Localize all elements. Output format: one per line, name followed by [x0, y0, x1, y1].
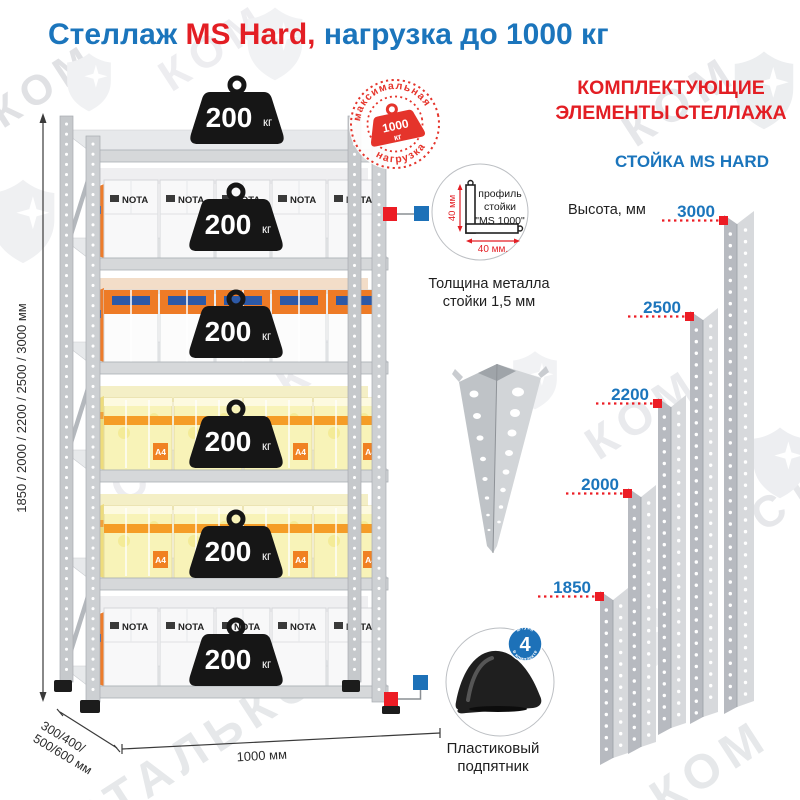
weight-value: 200 — [205, 536, 252, 567]
weight-value: 200 — [205, 316, 252, 347]
blue-marker — [413, 675, 428, 690]
profile-caption-3: "MS 1000" — [475, 215, 525, 227]
weight-value: 200 — [205, 644, 252, 675]
profile-detail: 40 мм 40 мм. профиль стойки "MS 1000" — [432, 164, 528, 260]
post-section-subheading: СТОЙКА MS HARD — [602, 152, 782, 172]
red-marker — [719, 216, 728, 225]
profile-dim-horizontal: 40 мм. — [478, 244, 508, 255]
height-caption: Высота, мм — [568, 202, 646, 218]
red-marker — [595, 592, 604, 601]
page-title: Стеллаж MS Hard, нагрузка до 1000 кг — [48, 18, 609, 52]
weight-value: 200 — [205, 209, 252, 240]
title-part-blue: Стеллаж — [48, 18, 185, 51]
components-heading-line2: ЭЛЕМЕНТЫ СТЕЛЛАЖА — [545, 101, 797, 126]
width-label: 1000 мм — [236, 747, 287, 765]
plastic-foot-detail: 4 штуки в комплекте — [446, 626, 554, 736]
a4-label: A4 — [155, 555, 166, 565]
box-brand: NOTA — [122, 195, 148, 206]
a4-label: A4 — [295, 447, 306, 457]
qty-value: 4 — [519, 634, 531, 656]
red-marker — [685, 312, 694, 321]
post-label: 2000 — [581, 475, 619, 494]
weight-badge: 200 кг — [190, 78, 283, 144]
height-label: 1850 / 2000 / 2200 / 2500 / 3000 мм — [14, 303, 29, 512]
post-label: 2200 — [611, 385, 649, 404]
profile-caption-2: стойки — [484, 201, 516, 213]
post-label: 3000 — [677, 202, 715, 221]
box-brand: NOTA — [290, 622, 316, 633]
blue-marker — [414, 206, 429, 221]
title-part-red: MS Hard, — [185, 18, 315, 51]
dim-height: 1850 / 2000 / 2200 / 2500 / 3000 мм — [14, 113, 47, 702]
profile-dim-vertical: 40 мм — [447, 195, 458, 221]
weight-unit: кг — [262, 441, 271, 453]
infographic: ЬКОМ КОМ КОМ СТАЛЬКОМ КОМ СТА СТАЛЬКОМ С… — [0, 0, 800, 800]
connector-profile — [383, 206, 429, 221]
dim-depth: 300/400/ 500/600 мм — [31, 709, 120, 777]
qty-badge: 4 штуки в комплекте — [508, 626, 542, 663]
foot-label-line2: подпятник — [457, 758, 529, 775]
profile-caption-1: профиль — [478, 188, 522, 200]
red-marker — [623, 489, 632, 498]
box-brand: NOTA — [178, 622, 204, 633]
box-brand: NOTA — [290, 195, 316, 206]
red-marker — [384, 692, 398, 706]
post-label: 1850 — [553, 578, 591, 597]
weight-value: 200 — [205, 426, 252, 457]
foot-label-line1: Пластиковый — [447, 740, 540, 757]
components-heading: КОМПЛЕКТУЮЩИЕ ЭЛЕМЕНТЫ СТЕЛЛАЖА — [545, 76, 797, 127]
box-brand: NOTA — [122, 622, 148, 633]
weight-value: 200 — [206, 102, 253, 133]
title-part-blue2: нагрузка до 1000 кг — [315, 18, 608, 51]
a4-label: A4 — [295, 555, 306, 565]
components-heading-line1: КОМПЛЕКТУЮЩИЕ — [545, 76, 797, 101]
weight-unit: кг — [262, 224, 271, 236]
box-brand: NOTA — [178, 195, 204, 206]
thickness-note-line1: Толщина металла — [428, 276, 550, 292]
post-label: 2500 — [643, 298, 681, 317]
weight-unit: кг — [262, 659, 271, 671]
connector-foot — [384, 675, 428, 706]
dim-width: 1000 мм — [122, 728, 440, 764]
weight-unit: кг — [263, 117, 272, 129]
weight-unit: кг — [262, 551, 271, 563]
post-variants: 1850 2000 — [538, 202, 754, 765]
thickness-note-line2: стойки 1,5 мм — [443, 294, 536, 310]
angle-post-photo — [452, 364, 549, 553]
red-marker — [383, 207, 397, 221]
weight-unit: кг — [262, 331, 271, 343]
a4-label: A4 — [155, 447, 166, 457]
red-marker — [653, 399, 662, 408]
